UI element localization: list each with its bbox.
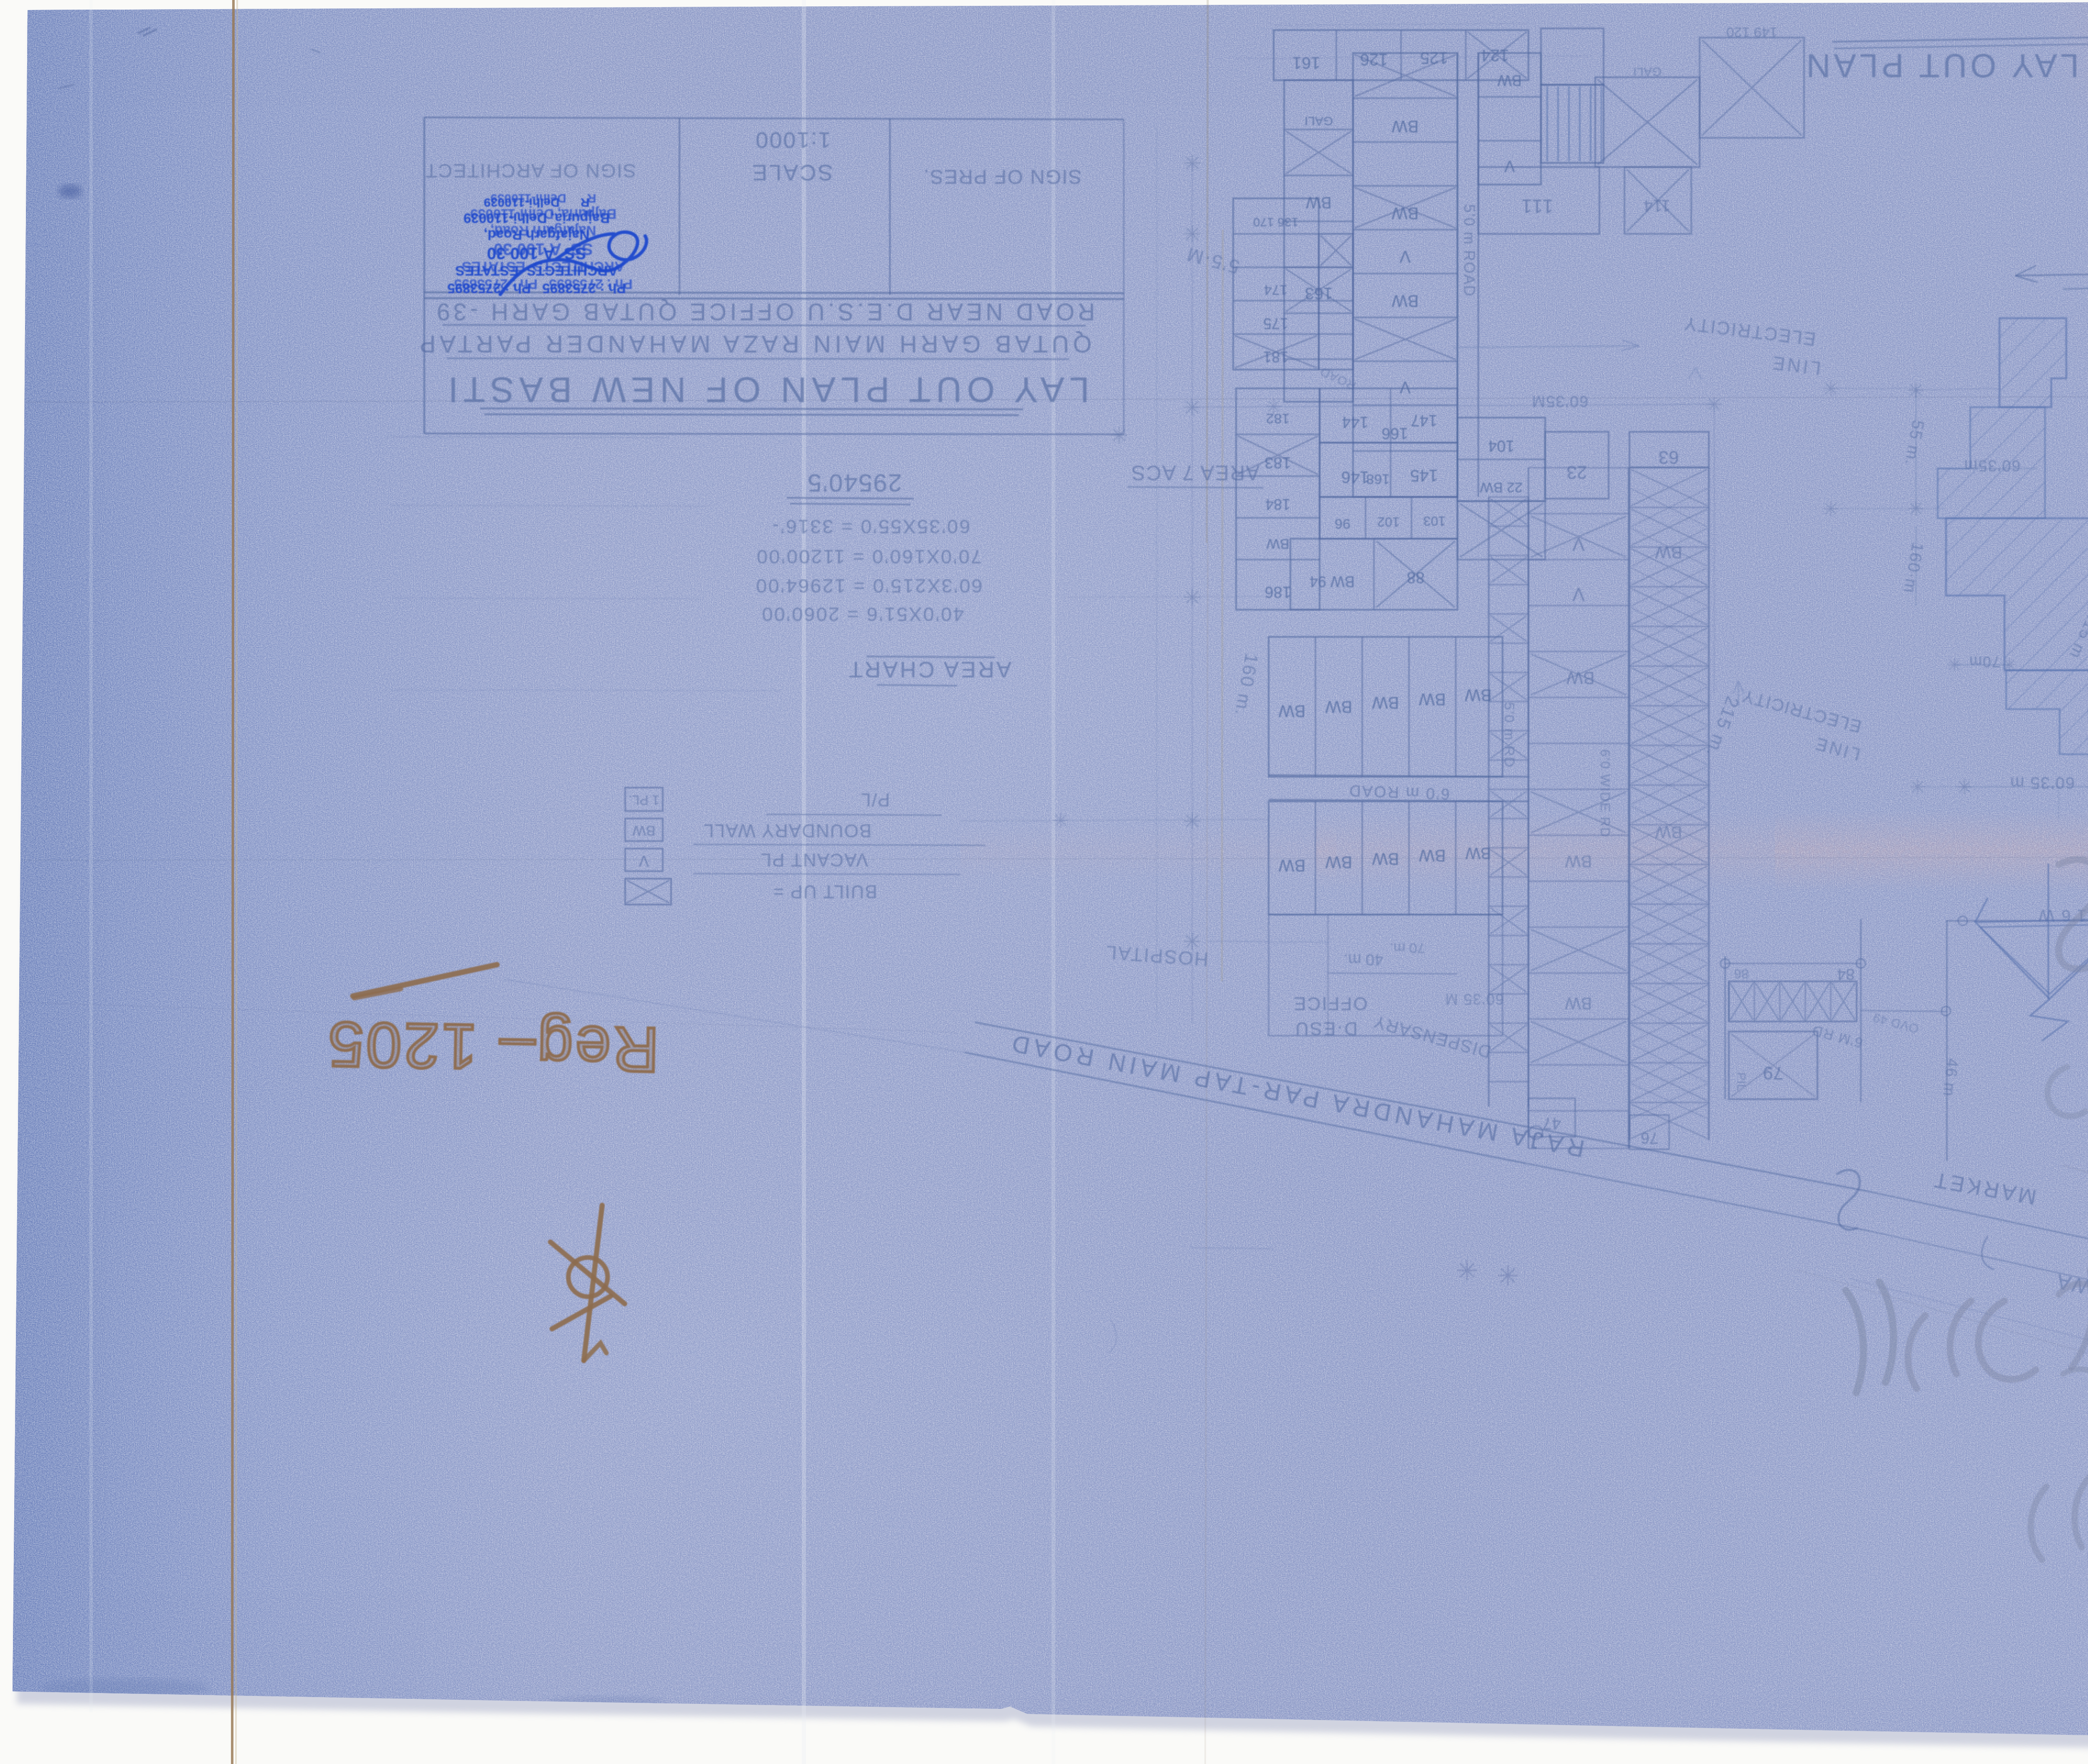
svg-text:103: 103: [1423, 514, 1445, 529]
svg-text:SCALE: SCALE: [750, 160, 833, 185]
svg-text:166: 166: [1381, 425, 1408, 442]
svg-text:ROAD NEAR D.E.S.U OFFICE QUTAB: ROAD NEAR D.E.S.U OFFICE QUTAB GARH -39: [433, 299, 1095, 325]
svg-text:V: V: [1399, 248, 1411, 266]
svg-text:BW: BW: [1392, 204, 1419, 223]
svg-text:147: 147: [1411, 412, 1437, 429]
svg-text:BW: BW: [1392, 292, 1419, 310]
svg-text:168: 168: [1366, 471, 1390, 487]
svg-text:70 m.: 70 m.: [1389, 940, 1425, 956]
svg-text:BW: BW: [1655, 823, 1683, 841]
svg-text:BW: BW: [1267, 536, 1290, 552]
svg-text:BW: BW: [1498, 72, 1522, 89]
svg-text:QUTAB GARH MAIN RAZA MAHANDER: QUTAB GARH MAIN RAZA MAHANDER PARTAP: [416, 331, 1092, 358]
svg-text:SS A 100 30: SS A 100 30: [494, 240, 593, 259]
svg-text:40 m.: 40 m.: [1343, 951, 1383, 968]
svg-text:76: 76: [1641, 1129, 1658, 1147]
svg-text:Bajpuria, Delhi-110039: Bajpuria, Delhi-110039: [470, 206, 616, 222]
svg-text:111: 111: [1520, 195, 1553, 217]
svg-text:146: 146: [1341, 468, 1369, 487]
svg-text:84: 84: [1837, 966, 1855, 983]
svg-text:BW: BW: [1325, 698, 1353, 716]
svg-text:149 120: 149 120: [1726, 25, 1778, 41]
svg-text:114: 114: [1644, 197, 1670, 215]
svg-text:BW: BW: [1565, 852, 1592, 871]
svg-text:181: 181: [1263, 348, 1288, 365]
svg-text:VACANT PL: VACANT PL: [760, 850, 868, 870]
svg-text:GALI: GALI: [1305, 114, 1333, 128]
svg-text:5’0 m RD: 5’0 m RD: [1502, 702, 1518, 768]
svg-text:6’0 WIDE RD: 6’0 WIDE RD: [1598, 749, 1613, 838]
svg-text:BW: BW: [1565, 994, 1592, 1013]
svg-text:SIGN OF ARCHITECT: SIGN OF ARCHITECT: [425, 160, 636, 182]
svg-text:175: 175: [1263, 315, 1288, 332]
svg-text:182: 182: [1266, 411, 1290, 427]
svg-text:BW 94: BW 94: [1310, 573, 1355, 590]
svg-text:AREA CHART: AREA CHART: [847, 657, 1011, 682]
svg-text:BW: BW: [1372, 850, 1399, 868]
svg-text:Najafgarh Road,: Najafgarh Road,: [490, 223, 596, 238]
svg-text:22 BW: 22 BW: [1480, 480, 1523, 496]
svg-text:LAY OUT PLAN: LAY OUT PLAN: [1803, 47, 2079, 84]
svg-text:BW: BW: [1392, 117, 1419, 136]
svg-text:BW: BW: [1465, 844, 1491, 862]
svg-text:GALI: GALI: [1633, 65, 1662, 79]
svg-text:BW: BW: [1419, 690, 1446, 709]
svg-text:60’35m: 60’35m: [1964, 457, 2021, 474]
svg-text:136 170: 136 170: [1253, 215, 1298, 229]
svg-text:70’0X160’0 = 11200’00: 70’0X160’0 = 11200’00: [755, 546, 982, 568]
svg-text:BW: BW: [1655, 543, 1683, 562]
svg-text:OFFICE: OFFICE: [1292, 994, 1367, 1014]
svg-text:BW: BW: [1465, 686, 1492, 705]
svg-text:96: 96: [1335, 516, 1351, 532]
svg-text:79: 79: [1763, 1063, 1784, 1083]
svg-text:86: 86: [1734, 966, 1749, 981]
svg-text:70m: 70m: [1969, 653, 2000, 670]
svg-text:SIGN OF PRES.: SIGN OF PRES.: [923, 166, 1082, 188]
svg-text:P/L: P/L: [860, 790, 890, 810]
svg-text:63: 63: [1659, 447, 1679, 468]
svg-text:88: 88: [1407, 569, 1424, 586]
svg-text:Ph : 2753895 Ph : 2753895: Ph : 2753895 Ph : 2753895: [454, 276, 632, 292]
svg-text:D·ESU: D·ESU: [1294, 1019, 1358, 1039]
svg-text:V: V: [1504, 157, 1515, 175]
svg-text:V: V: [639, 852, 649, 869]
svg-text:60’35M: 60’35M: [1531, 393, 1589, 410]
svg-text:104: 104: [1488, 437, 1514, 455]
svg-text:60’35X55’0 = 3316’-: 60’35X55’0 = 3316’-: [771, 516, 970, 538]
svg-text:R Delhi-110039: R Delhi-110039: [490, 192, 596, 205]
svg-text:184: 184: [1265, 496, 1290, 513]
svg-text:174: 174: [1264, 282, 1288, 298]
svg-text:BW: BW: [1372, 694, 1399, 712]
svg-text:V: V: [1572, 584, 1585, 605]
svg-text:23: 23: [1567, 462, 1587, 483]
svg-text:60’35 M: 60’35 M: [1444, 991, 1504, 1008]
svg-text:186: 186: [1264, 583, 1291, 601]
svg-text:5’0 m ROAD: 5’0 m ROAD: [1461, 204, 1478, 297]
svg-text:60’35 m: 60’35 m: [2009, 774, 2075, 792]
svg-text:29540’5: 29540’5: [807, 469, 902, 497]
svg-text:1:1000: 1:1000: [754, 128, 831, 153]
svg-text:40’0X51’6 = 2060’00: 40’0X51’6 = 2060’00: [761, 603, 964, 626]
svg-text:Reg– 1205: Reg– 1205: [325, 1009, 660, 1086]
svg-text:LAY OUT PLAN OF NEW BASTI: LAY OUT PLAN OF NEW BASTI: [443, 370, 1089, 410]
svg-text:1 PL.: 1 PL.: [628, 793, 660, 808]
svg-text:BOUNDARY WALL: BOUNDARY WALL: [703, 821, 872, 841]
svg-text:BW: BW: [1279, 702, 1306, 720]
svg-text:161: 161: [1292, 54, 1320, 72]
svg-text:125: 125: [1420, 49, 1448, 67]
svg-text:102: 102: [1377, 514, 1399, 530]
svg-text:183: 183: [1264, 454, 1291, 471]
svg-text:BW: BW: [1566, 668, 1595, 688]
svg-text:BUILT UP =: BUILT UP =: [772, 882, 877, 902]
svg-text:6’0 m ROAD: 6’0 m ROAD: [1348, 782, 1450, 803]
svg-text:BW: BW: [633, 823, 656, 839]
svg-text:144: 144: [1342, 413, 1368, 431]
svg-text:BW: BW: [1325, 853, 1353, 872]
svg-text:145: 145: [1410, 466, 1438, 485]
svg-text:V: V: [1572, 534, 1585, 555]
svg-text:BW: BW: [1419, 847, 1446, 865]
svg-text:BW: BW: [1279, 857, 1306, 875]
svg-text:PIL: PIL: [1735, 1072, 1748, 1091]
svg-text:60’3X215’0 = 12964’00: 60’3X215’0 = 12964’00: [755, 575, 982, 597]
